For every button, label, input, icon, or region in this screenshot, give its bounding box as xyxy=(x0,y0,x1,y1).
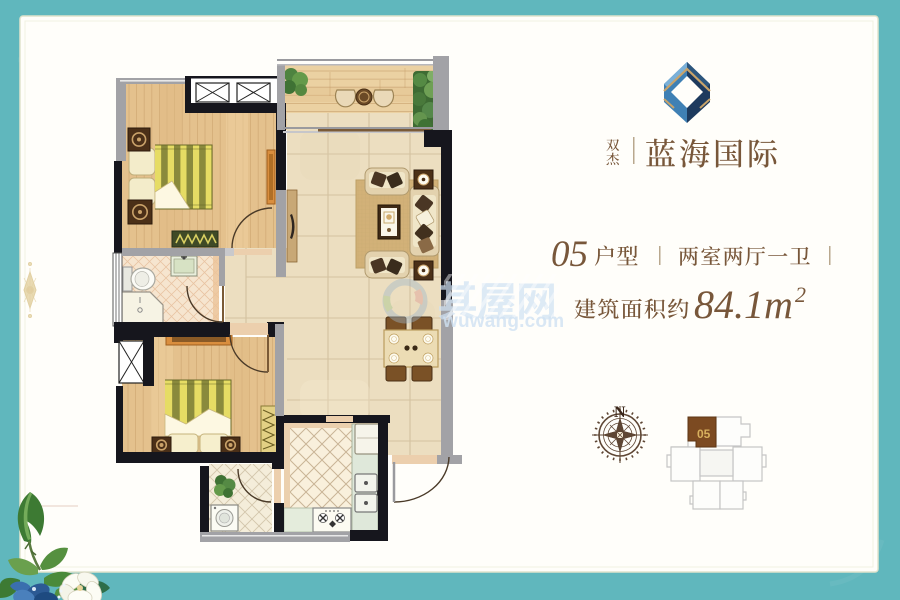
svg-text:2: 2 xyxy=(795,282,806,307)
svg-text:N: N xyxy=(614,404,626,421)
svg-text:84.1m: 84.1m xyxy=(694,282,793,327)
svg-text:wuwang.com: wuwang.com xyxy=(442,311,564,332)
svg-text:05: 05 xyxy=(697,427,711,441)
svg-text:05: 05 xyxy=(551,234,588,275)
